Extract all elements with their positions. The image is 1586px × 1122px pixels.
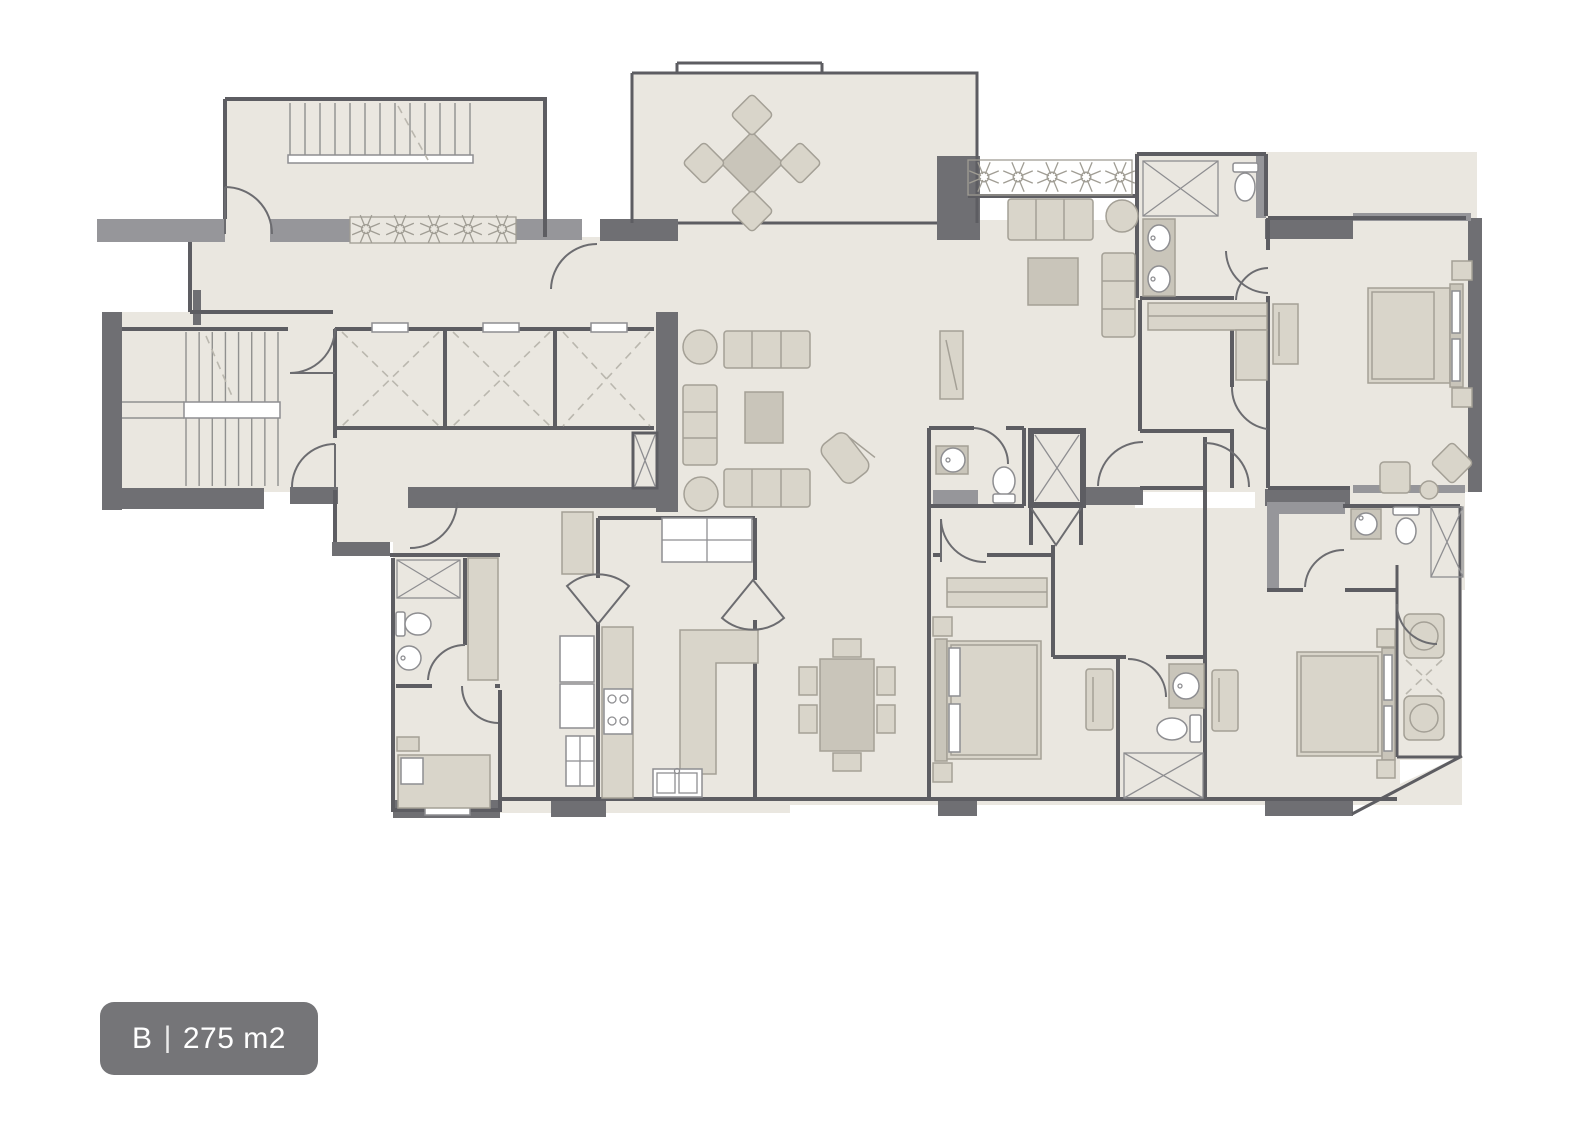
chair bbox=[833, 753, 861, 771]
sofa bbox=[724, 469, 810, 507]
nightstand bbox=[1377, 629, 1395, 647]
chair bbox=[799, 705, 817, 733]
floor-slabs bbox=[103, 73, 1477, 813]
nightstand bbox=[397, 737, 419, 751]
sofa bbox=[1008, 199, 1093, 240]
chair bbox=[877, 667, 895, 695]
unit-area: 275 m2 bbox=[183, 1022, 286, 1056]
round-table bbox=[1106, 200, 1138, 232]
sofa bbox=[724, 331, 810, 368]
closet bbox=[1236, 330, 1267, 380]
side-table bbox=[1420, 481, 1438, 499]
bed bbox=[947, 641, 1041, 759]
dining-table bbox=[820, 659, 874, 751]
tv-console bbox=[1273, 304, 1298, 364]
coffee-table bbox=[745, 392, 783, 443]
armchair bbox=[1380, 462, 1410, 493]
chair bbox=[833, 639, 861, 657]
toilet bbox=[993, 467, 1015, 495]
side-table bbox=[683, 330, 717, 364]
toilet bbox=[1157, 718, 1187, 740]
floor-plan-page: B | 275 m2 bbox=[0, 0, 1586, 1122]
armchair bbox=[1086, 669, 1113, 730]
sink bbox=[1355, 513, 1377, 535]
headboard bbox=[935, 639, 947, 761]
stove bbox=[604, 689, 632, 734]
planter-family bbox=[968, 160, 1135, 195]
armchair bbox=[1212, 670, 1238, 731]
toilet bbox=[396, 612, 405, 636]
side-table bbox=[684, 477, 718, 511]
unit-name: B bbox=[132, 1022, 153, 1056]
closet bbox=[468, 558, 498, 680]
chair bbox=[799, 667, 817, 695]
floor-plan bbox=[0, 0, 1586, 1122]
bed bbox=[1368, 288, 1450, 383]
bed bbox=[1297, 652, 1382, 756]
sink bbox=[1173, 673, 1199, 699]
toilet bbox=[1233, 163, 1258, 172]
nightstand bbox=[1452, 261, 1472, 280]
badge-separator: | bbox=[164, 1021, 172, 1055]
pantry-cabinet bbox=[562, 512, 593, 574]
sink bbox=[941, 448, 965, 472]
unit-badge[interactable]: B | 275 m2 bbox=[100, 1002, 318, 1075]
fridge bbox=[560, 636, 594, 682]
square-table bbox=[1028, 258, 1078, 305]
armchair bbox=[1102, 253, 1135, 337]
nightstand bbox=[933, 763, 952, 782]
nightstand bbox=[933, 617, 952, 636]
chair bbox=[877, 705, 895, 733]
nightstand bbox=[1377, 760, 1395, 778]
armchair bbox=[683, 385, 717, 465]
toilet bbox=[1393, 507, 1419, 515]
nightstand bbox=[1452, 388, 1472, 407]
freezer bbox=[560, 684, 594, 728]
